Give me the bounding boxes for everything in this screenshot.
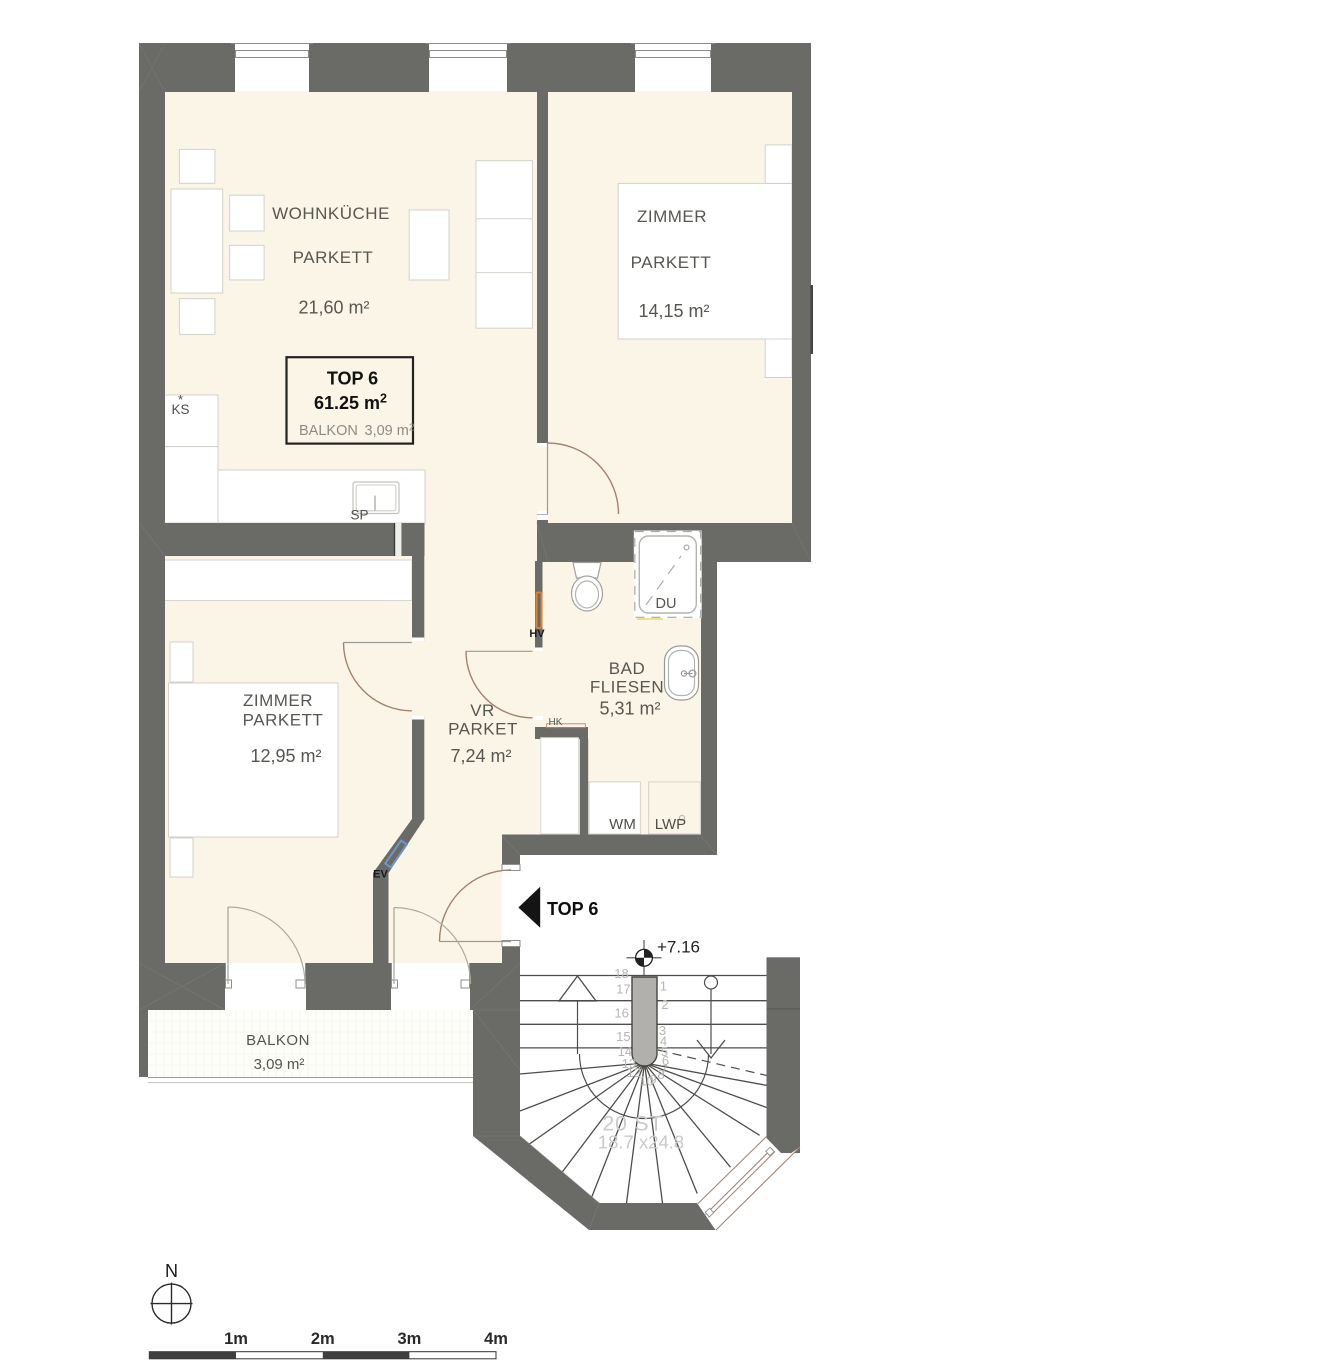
- svg-text:9: 9: [649, 1072, 656, 1087]
- svg-text:TOP 6: TOP 6: [327, 369, 378, 389]
- svg-text:12,95 m²: 12,95 m²: [250, 746, 321, 766]
- svg-text:*: *: [178, 392, 183, 407]
- svg-text:3,09 m2: 3,09 m2: [365, 423, 415, 440]
- svg-text:EV: EV: [373, 869, 388, 881]
- svg-text:16: 16: [614, 1005, 628, 1020]
- svg-text:15: 15: [616, 1029, 630, 1044]
- svg-text:8: 8: [657, 1067, 664, 1082]
- svg-text:17: 17: [616, 982, 630, 997]
- svg-text:5,31 m²: 5,31 m²: [599, 699, 660, 719]
- svg-text:ZIMMER: ZIMMER: [637, 207, 707, 226]
- svg-text:14,15 m²: 14,15 m²: [638, 301, 709, 321]
- svg-text:4m: 4m: [484, 1330, 508, 1348]
- svg-text:LWP: LWP: [655, 816, 686, 833]
- svg-text:BALKON: BALKON: [299, 423, 358, 439]
- svg-text:HK: HK: [549, 717, 563, 728]
- svg-text:SP: SP: [351, 508, 369, 523]
- svg-text:18: 18: [614, 966, 628, 981]
- svg-text:FLIESEN: FLIESEN: [590, 678, 664, 697]
- svg-text:HV: HV: [529, 628, 545, 640]
- svg-text:PARKETT: PARKETT: [293, 248, 374, 267]
- svg-text:2: 2: [661, 997, 668, 1012]
- svg-text:WOHNKÜCHE: WOHNKÜCHE: [272, 204, 390, 223]
- svg-text:1: 1: [660, 979, 667, 994]
- svg-text:BALKON: BALKON: [246, 1032, 310, 1049]
- svg-text:TOP 6: TOP 6: [547, 899, 598, 919]
- svg-text:21,60 m²: 21,60 m²: [298, 298, 369, 318]
- svg-text:PARKETT: PARKETT: [631, 253, 712, 272]
- svg-text:61.25 m2: 61.25 m2: [314, 392, 387, 414]
- svg-text:BAD: BAD: [609, 659, 645, 678]
- svg-text:18.7 x24.8: 18.7 x24.8: [598, 1132, 684, 1153]
- svg-text:7,24 m²: 7,24 m²: [450, 746, 511, 766]
- svg-text:+7.16: +7.16: [657, 938, 700, 957]
- svg-text:N: N: [165, 1261, 178, 1281]
- svg-text:WM: WM: [609, 816, 636, 833]
- svg-text:VR: VR: [470, 701, 495, 720]
- svg-text:DU: DU: [656, 596, 677, 612]
- svg-text:1m: 1m: [224, 1330, 248, 1348]
- svg-text:PARKETT: PARKETT: [243, 711, 324, 730]
- svg-text:PARKET: PARKET: [448, 720, 518, 739]
- svg-text:2m: 2m: [311, 1330, 335, 1348]
- svg-text:3m: 3m: [397, 1330, 421, 1348]
- svg-text:ZIMMER: ZIMMER: [243, 691, 313, 710]
- svg-text:3,09 m²: 3,09 m²: [254, 1056, 305, 1073]
